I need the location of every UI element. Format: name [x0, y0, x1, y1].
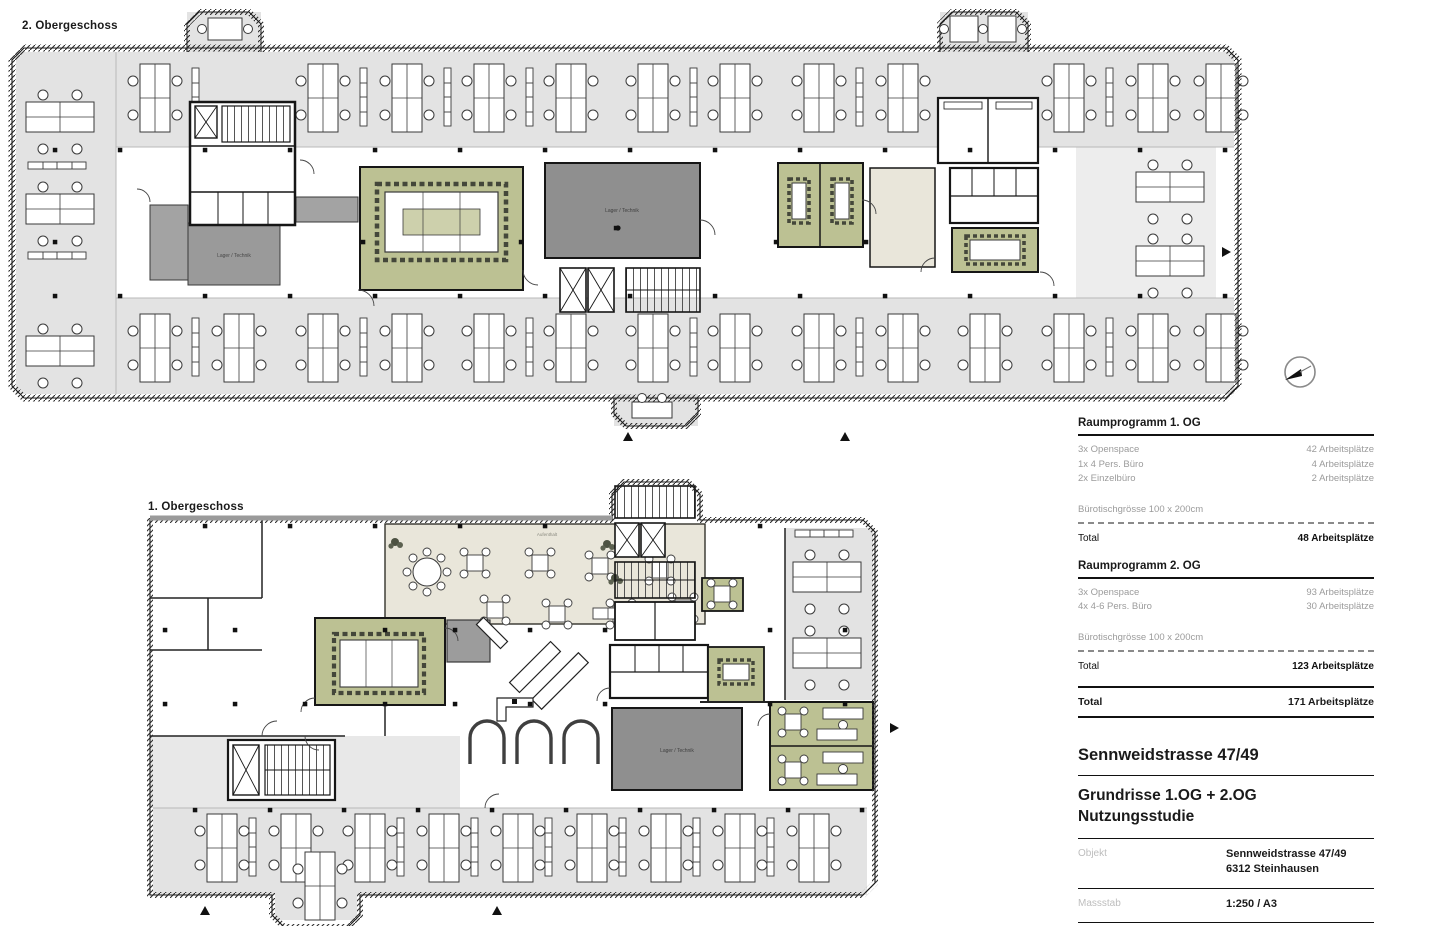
- scale-value: 1:250 / A3: [1226, 897, 1277, 912]
- room-label-storage-left: Lager / Technik: [217, 253, 251, 259]
- program-item: 2x Einzelbüro: [1078, 472, 1136, 487]
- program-section-title-1og: Raumprogramm 1. OG: [1078, 417, 1374, 436]
- grand-total-label: Total: [1078, 696, 1102, 708]
- meeting-room-1og: [315, 618, 445, 705]
- plan-label-2og: 2. Obergeschoss: [22, 20, 118, 32]
- object-value: Sennweidstrasse 47/49 6312 Steinhausen: [1226, 847, 1346, 878]
- north-arrow: [1285, 357, 1315, 387]
- program-row: 3x Openspace 93 Arbeitsplätze: [1078, 586, 1374, 601]
- project-title: Sennweidstrasse 47/49: [1078, 742, 1374, 776]
- program-value: 93 Arbeitsplätze: [1306, 586, 1374, 601]
- room-label-storage-1og: Lager / Technik: [660, 748, 694, 754]
- core-center-1og: [610, 486, 708, 698]
- room-program-panel: Raumprogramm 1. OG 3x Openspace 42 Arbei…: [1078, 417, 1374, 923]
- program-row: 3x Openspace 42 Arbeitsplätze: [1078, 443, 1374, 458]
- object-label: Objekt: [1078, 847, 1226, 859]
- program-value: 30 Arbeitsplätze: [1306, 600, 1374, 615]
- program-item: 3x Openspace: [1078, 443, 1139, 458]
- total-value: 123 Arbeitsplätze: [1292, 661, 1374, 672]
- program-value: 4 Arbeitsplätze: [1312, 458, 1374, 473]
- program-grand-total: Total 171 Arbeitsplätze: [1078, 686, 1374, 718]
- dashed-divider: [1078, 650, 1374, 652]
- core-center: [560, 268, 700, 312]
- scale-row: Massstab 1:250 / A3: [1078, 889, 1374, 923]
- green-room-small-mid: [708, 647, 764, 702]
- green-offices-pair: [778, 163, 863, 247]
- program-total-2og: Total 123 Arbeitsplätze: [1078, 661, 1374, 672]
- core-right: [938, 98, 1038, 272]
- program-item: 3x Openspace: [1078, 586, 1139, 601]
- total-label: Total: [1078, 533, 1099, 544]
- floor-plan-sheet: { "sheet": { "plan_upper_label": "2. Obe…: [0, 0, 1440, 926]
- lounge-room: [870, 168, 935, 267]
- title-block: Sennweidstrasse 47/49 Grundrisse 1.OG + …: [1078, 742, 1374, 924]
- green-offices-right: [770, 702, 873, 790]
- drawing-title: Grundrisse 1.OG + 2.OG Nutzungsstudie: [1078, 776, 1374, 839]
- room-label-storage-center: Lager / Technik: [605, 208, 639, 214]
- object-address-line2: 6312 Steinhausen: [1226, 862, 1346, 877]
- program-value: 42 Arbeitsplätze: [1306, 443, 1374, 458]
- program-row: 2x Einzelbüro 2 Arbeitsplätze: [1078, 472, 1374, 487]
- program-item: 1x 4 Pers. Büro: [1078, 458, 1143, 473]
- drawing-title-line1: Grundrisse 1.OG + 2.OG: [1078, 785, 1374, 807]
- floor-plan-2og: Lager / Technik Lager / Technik: [0, 0, 1345, 448]
- core-bottomleft-1og: [228, 740, 335, 800]
- drawing-title-line2: Nutzungsstudie: [1078, 806, 1374, 828]
- program-total-1og: Total 48 Arbeitsplätze: [1078, 533, 1374, 544]
- green-room-small-top: [702, 578, 743, 611]
- total-label: Total: [1078, 661, 1099, 672]
- program-value: 2 Arbeitsplätze: [1312, 472, 1374, 487]
- grand-total-value: 171 Arbeitsplätze: [1288, 696, 1374, 708]
- floor-plan-1og: Aufenthalt Lager: [145, 478, 965, 926]
- desk-size-note: Bürotischgrösse 100 x 200cm: [1078, 632, 1374, 643]
- plan-label-1og: 1. Obergeschoss: [148, 501, 244, 513]
- object-address-line1: Sennweidstrasse 47/49: [1226, 847, 1346, 862]
- program-item: 4x 4-6 Pers. Büro: [1078, 600, 1152, 615]
- program-section-title-2og: Raumprogramm 2. OG: [1078, 560, 1374, 579]
- room-label-lounge: Aufenthalt: [537, 532, 558, 537]
- program-row: 1x 4 Pers. Büro 4 Arbeitsplätze: [1078, 458, 1374, 473]
- total-value: 48 Arbeitsplätze: [1298, 533, 1374, 544]
- meeting-room-large: [360, 167, 523, 290]
- object-row: Objekt Sennweidstrasse 47/49 6312 Steinh…: [1078, 839, 1374, 889]
- desk-size-note: Bürotischgrösse 100 x 200cm: [1078, 504, 1374, 515]
- dashed-divider: [1078, 522, 1374, 524]
- program-row: 4x 4-6 Pers. Büro 30 Arbeitsplätze: [1078, 600, 1374, 615]
- scale-label: Massstab: [1078, 897, 1226, 909]
